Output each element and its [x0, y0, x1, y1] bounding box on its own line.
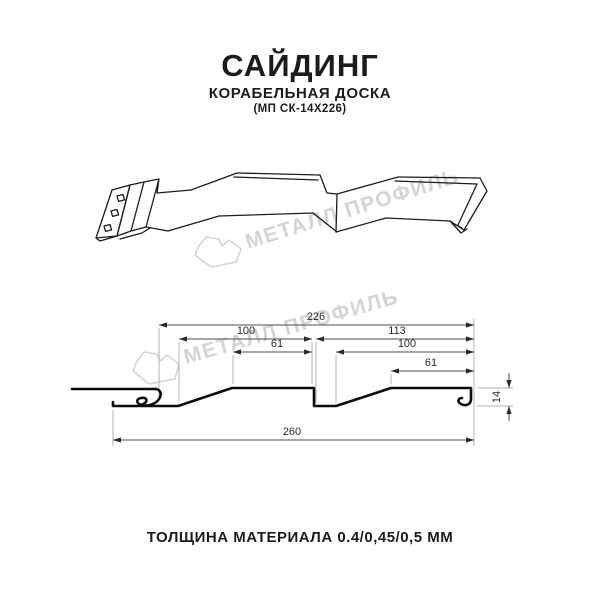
dim-label-113: 113 — [388, 325, 406, 337]
dim-label-226: 226 — [307, 311, 325, 323]
lock-fold — [117, 179, 159, 239]
panel-slope-1 — [168, 173, 237, 231]
panel-board-1 — [219, 173, 320, 216]
watermark-lower: МЕТАЛЛ ПРОФИЛЬ — [133, 285, 401, 384]
dim-height: 14 — [491, 373, 512, 421]
dim-cover-width: 226 — [159, 311, 474, 328]
dim-overall-width: 260 — [113, 426, 474, 443]
panel-profile — [113, 388, 471, 406]
dim-label-61-left: 61 — [271, 338, 283, 350]
nail-hole — [104, 225, 112, 232]
material-thickness-label: ТОЛЩИНА МАТЕРИАЛА 0.4/0,45/0,5 ММ — [0, 529, 600, 546]
dim-label-100-right: 100 — [398, 338, 416, 350]
dim-label-260: 260 — [283, 426, 301, 438]
profile-outline — [72, 388, 471, 406]
dim-right-section: 113 — [316, 325, 474, 342]
dim-label-100-left: 100 — [237, 325, 255, 337]
nail-hole — [117, 195, 125, 202]
product-sheet: САЙДИНГ КОРАБЕЛЬНАЯ ДОСКА (МП СК-14Х226)… — [0, 0, 600, 600]
nail-hole — [111, 210, 119, 217]
dim-label-14: 14 — [491, 391, 503, 403]
dim-right-sub: 100 — [336, 338, 474, 355]
metall-profil-logo-icon — [195, 237, 241, 267]
watermark-brand-text: МЕТАЛЛ ПРОФИЛЬ — [181, 285, 401, 369]
panel-bottom-flat — [146, 190, 191, 231]
technical-drawing: МЕТАЛЛ ПРОФИЛЬ МЕТАЛЛ ПРОФИЛЬ — [0, 0, 600, 600]
dim-right-board: 61 — [391, 357, 474, 374]
extension-lines — [113, 319, 513, 446]
dim-label-61-right: 61 — [425, 357, 437, 369]
metall-profil-logo-icon — [133, 352, 179, 384]
lock-curl — [137, 389, 160, 406]
